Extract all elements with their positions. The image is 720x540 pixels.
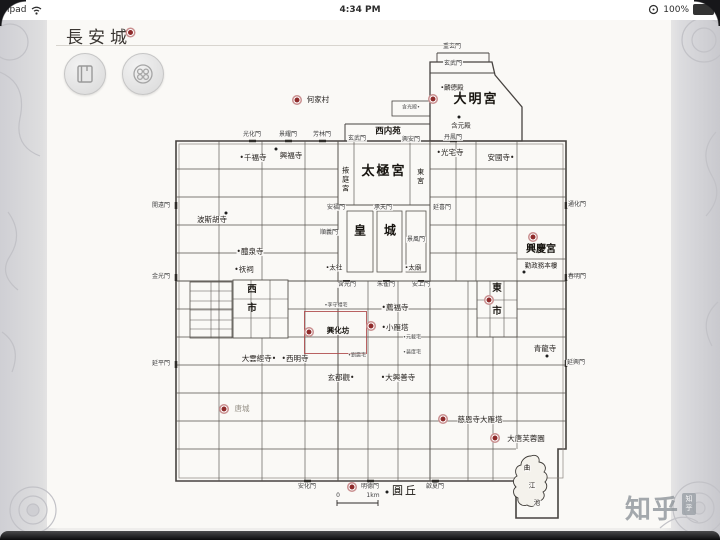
map-label: •醴泉寺 xyxy=(237,248,264,256)
map-label: 含元殿 xyxy=(451,123,471,130)
map-label: •裴度宅 xyxy=(403,350,421,355)
map-label: •李守禮宅 xyxy=(325,303,348,308)
scale-bar xyxy=(337,500,378,506)
map-label: 含光門 xyxy=(337,282,357,288)
map-label: 西 xyxy=(247,285,257,295)
map-label: 安化門 xyxy=(297,484,317,490)
map-label: 太極宮 xyxy=(361,165,406,179)
map-label: 丹鳳門 xyxy=(443,135,463,141)
map-label: 興慶宮 xyxy=(526,245,556,256)
map-label: •麟德殿 xyxy=(440,85,463,92)
map-label: 城 xyxy=(384,225,396,238)
map-label: 慈恩寺大雁塔 xyxy=(458,416,503,424)
map-label: 玄都觀• xyxy=(328,374,355,382)
site-marker-xinghuafang[interactable] xyxy=(307,330,312,335)
dot-marker xyxy=(546,355,549,358)
site-marker-hejiacun[interactable] xyxy=(295,98,300,103)
map-label: •薦福寺 xyxy=(382,304,409,312)
site-marker-south-wall[interactable] xyxy=(350,485,355,490)
map-label: 啟夏門 xyxy=(425,484,445,490)
map-label: 大唐芙蓉園 xyxy=(507,435,545,443)
map-label: •西明寺 xyxy=(282,355,309,363)
map-label: 安上門 xyxy=(411,282,431,288)
document-button[interactable] xyxy=(64,53,106,95)
site-marker-xiaoyanta[interactable] xyxy=(369,324,374,329)
map-label: 安國寺• xyxy=(488,154,515,162)
map-label: 東宮 xyxy=(416,168,423,186)
map-label: 0 xyxy=(335,493,341,499)
site-marker-dongshi[interactable] xyxy=(487,298,492,303)
map-label: 春明門 xyxy=(567,274,587,280)
map-label: 西内苑 xyxy=(375,128,401,137)
map-label: 開遠門 xyxy=(151,203,171,209)
dot-marker xyxy=(386,491,389,494)
artifact-button[interactable] xyxy=(122,53,164,95)
legend-marker xyxy=(128,30,133,35)
map-label: 市 xyxy=(247,304,257,314)
map-label: 朱雀門 xyxy=(376,282,396,288)
watermark-seal: 知乎 xyxy=(682,493,696,515)
map-label: 延平門 xyxy=(151,361,171,367)
map-label: •太社 xyxy=(326,265,343,272)
map-label: 大明宮 xyxy=(453,93,498,107)
dot-marker xyxy=(225,212,228,215)
map-label: 唐城 xyxy=(235,405,250,413)
vessel-icon xyxy=(131,62,155,86)
map-label: 玄武門 xyxy=(347,136,367,142)
map-label: 皇 xyxy=(354,225,366,238)
map-label: •元載宅 xyxy=(403,335,421,340)
site-marker-tangcheng[interactable] xyxy=(222,407,227,412)
zhihu-watermark: 知乎 知乎 xyxy=(625,489,696,526)
rotation-lock-icon xyxy=(648,4,659,15)
map-label: 興安門 xyxy=(401,137,421,143)
map-label: 景風門 xyxy=(406,237,426,243)
clock: 4:34 PM xyxy=(0,5,720,15)
map-label: 玄武門 xyxy=(443,61,463,67)
map-label: 大雲經寺• xyxy=(242,355,276,363)
status-bar: ipad 4:34 PM 100% xyxy=(0,0,720,20)
map-label: •千福寺 xyxy=(240,154,267,162)
dot-marker xyxy=(275,148,278,151)
map-label: •光宅寺 xyxy=(437,149,464,157)
map-label: •大興善寺 xyxy=(381,374,415,382)
map-label: •祆祠 xyxy=(234,266,253,274)
watermark-text: 知乎 xyxy=(625,489,679,526)
changan-map[interactable]: 重玄門玄武門•麟德殿大明宮含元殿含光殿•西内苑玄武門興安門丹鳳門光化門景耀門芳林… xyxy=(0,0,720,540)
map-linework xyxy=(0,0,720,540)
dot-marker xyxy=(523,271,526,274)
map-label: 含光殿• xyxy=(402,105,420,110)
map-label: 圓丘 xyxy=(392,485,418,497)
page-title: 長安城 xyxy=(66,23,132,48)
map-label: 興化坊 xyxy=(327,327,350,335)
map-label: 曲 xyxy=(524,465,531,472)
site-marker-dayanta[interactable] xyxy=(441,417,446,422)
map-label: •小雁塔 xyxy=(382,324,409,332)
battery-percent: 100% xyxy=(663,5,689,15)
battery-icon xyxy=(693,4,714,15)
map-label: 延興門 xyxy=(566,360,586,366)
book-icon xyxy=(74,63,96,85)
map-label: •劉震宅 xyxy=(348,353,366,358)
map-label: 景耀門 xyxy=(278,132,298,138)
site-marker-daminggong[interactable] xyxy=(431,97,436,102)
dot-marker xyxy=(458,116,461,119)
map-label: 延喜門 xyxy=(432,205,452,211)
map-label: 承天門 xyxy=(373,205,393,211)
map-label: 明德門 xyxy=(360,484,380,490)
map-label: 青龍寺 xyxy=(534,345,557,353)
map-label: 金光門 xyxy=(151,274,171,280)
map-label: 興福寺 xyxy=(280,152,303,160)
map-label: 掖庭宮 xyxy=(341,167,348,194)
map-label: 勤政務本樓 xyxy=(525,263,558,270)
map-label: 何家村 xyxy=(307,96,330,104)
ipad-screen: ipad 4:34 PM 100% 長安城 xyxy=(0,0,720,540)
map-label: •太廟 xyxy=(405,265,422,272)
site-marker-furongyuan[interactable] xyxy=(493,436,498,441)
map-label: 安福門 xyxy=(326,205,346,211)
map-label: 通化門 xyxy=(567,202,587,208)
map-label: 順義門 xyxy=(319,230,339,236)
site-marker-xingqinggong[interactable] xyxy=(531,235,536,240)
map-label: 江 xyxy=(529,483,536,490)
map-label: 光化門 xyxy=(242,132,262,138)
map-label: 東 xyxy=(492,284,502,294)
map-label: 市 xyxy=(492,307,502,317)
bezel-bottom-bar xyxy=(0,531,720,540)
map-label: 1km xyxy=(365,493,380,499)
map-label: 池 xyxy=(534,500,541,507)
map-label: 芳林門 xyxy=(312,132,332,138)
map-label: 波斯胡寺 xyxy=(197,216,227,224)
